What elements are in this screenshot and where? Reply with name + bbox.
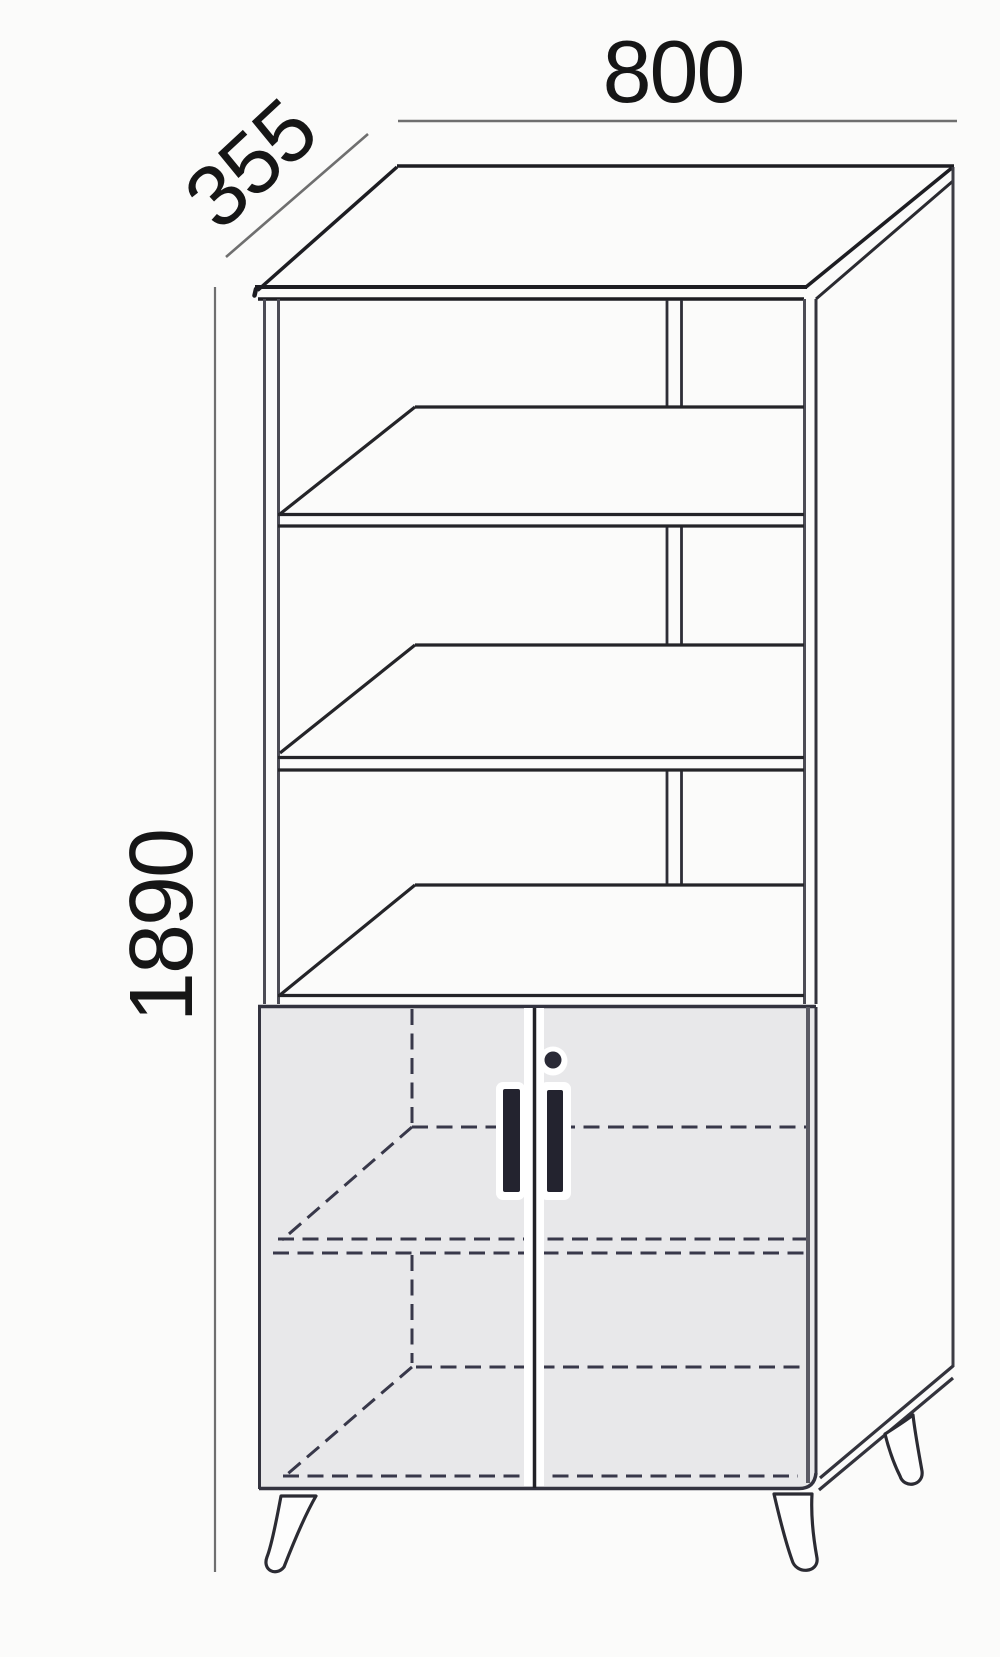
svg-text:800: 800 bbox=[603, 22, 744, 121]
svg-text:1890: 1890 bbox=[112, 830, 212, 1022]
